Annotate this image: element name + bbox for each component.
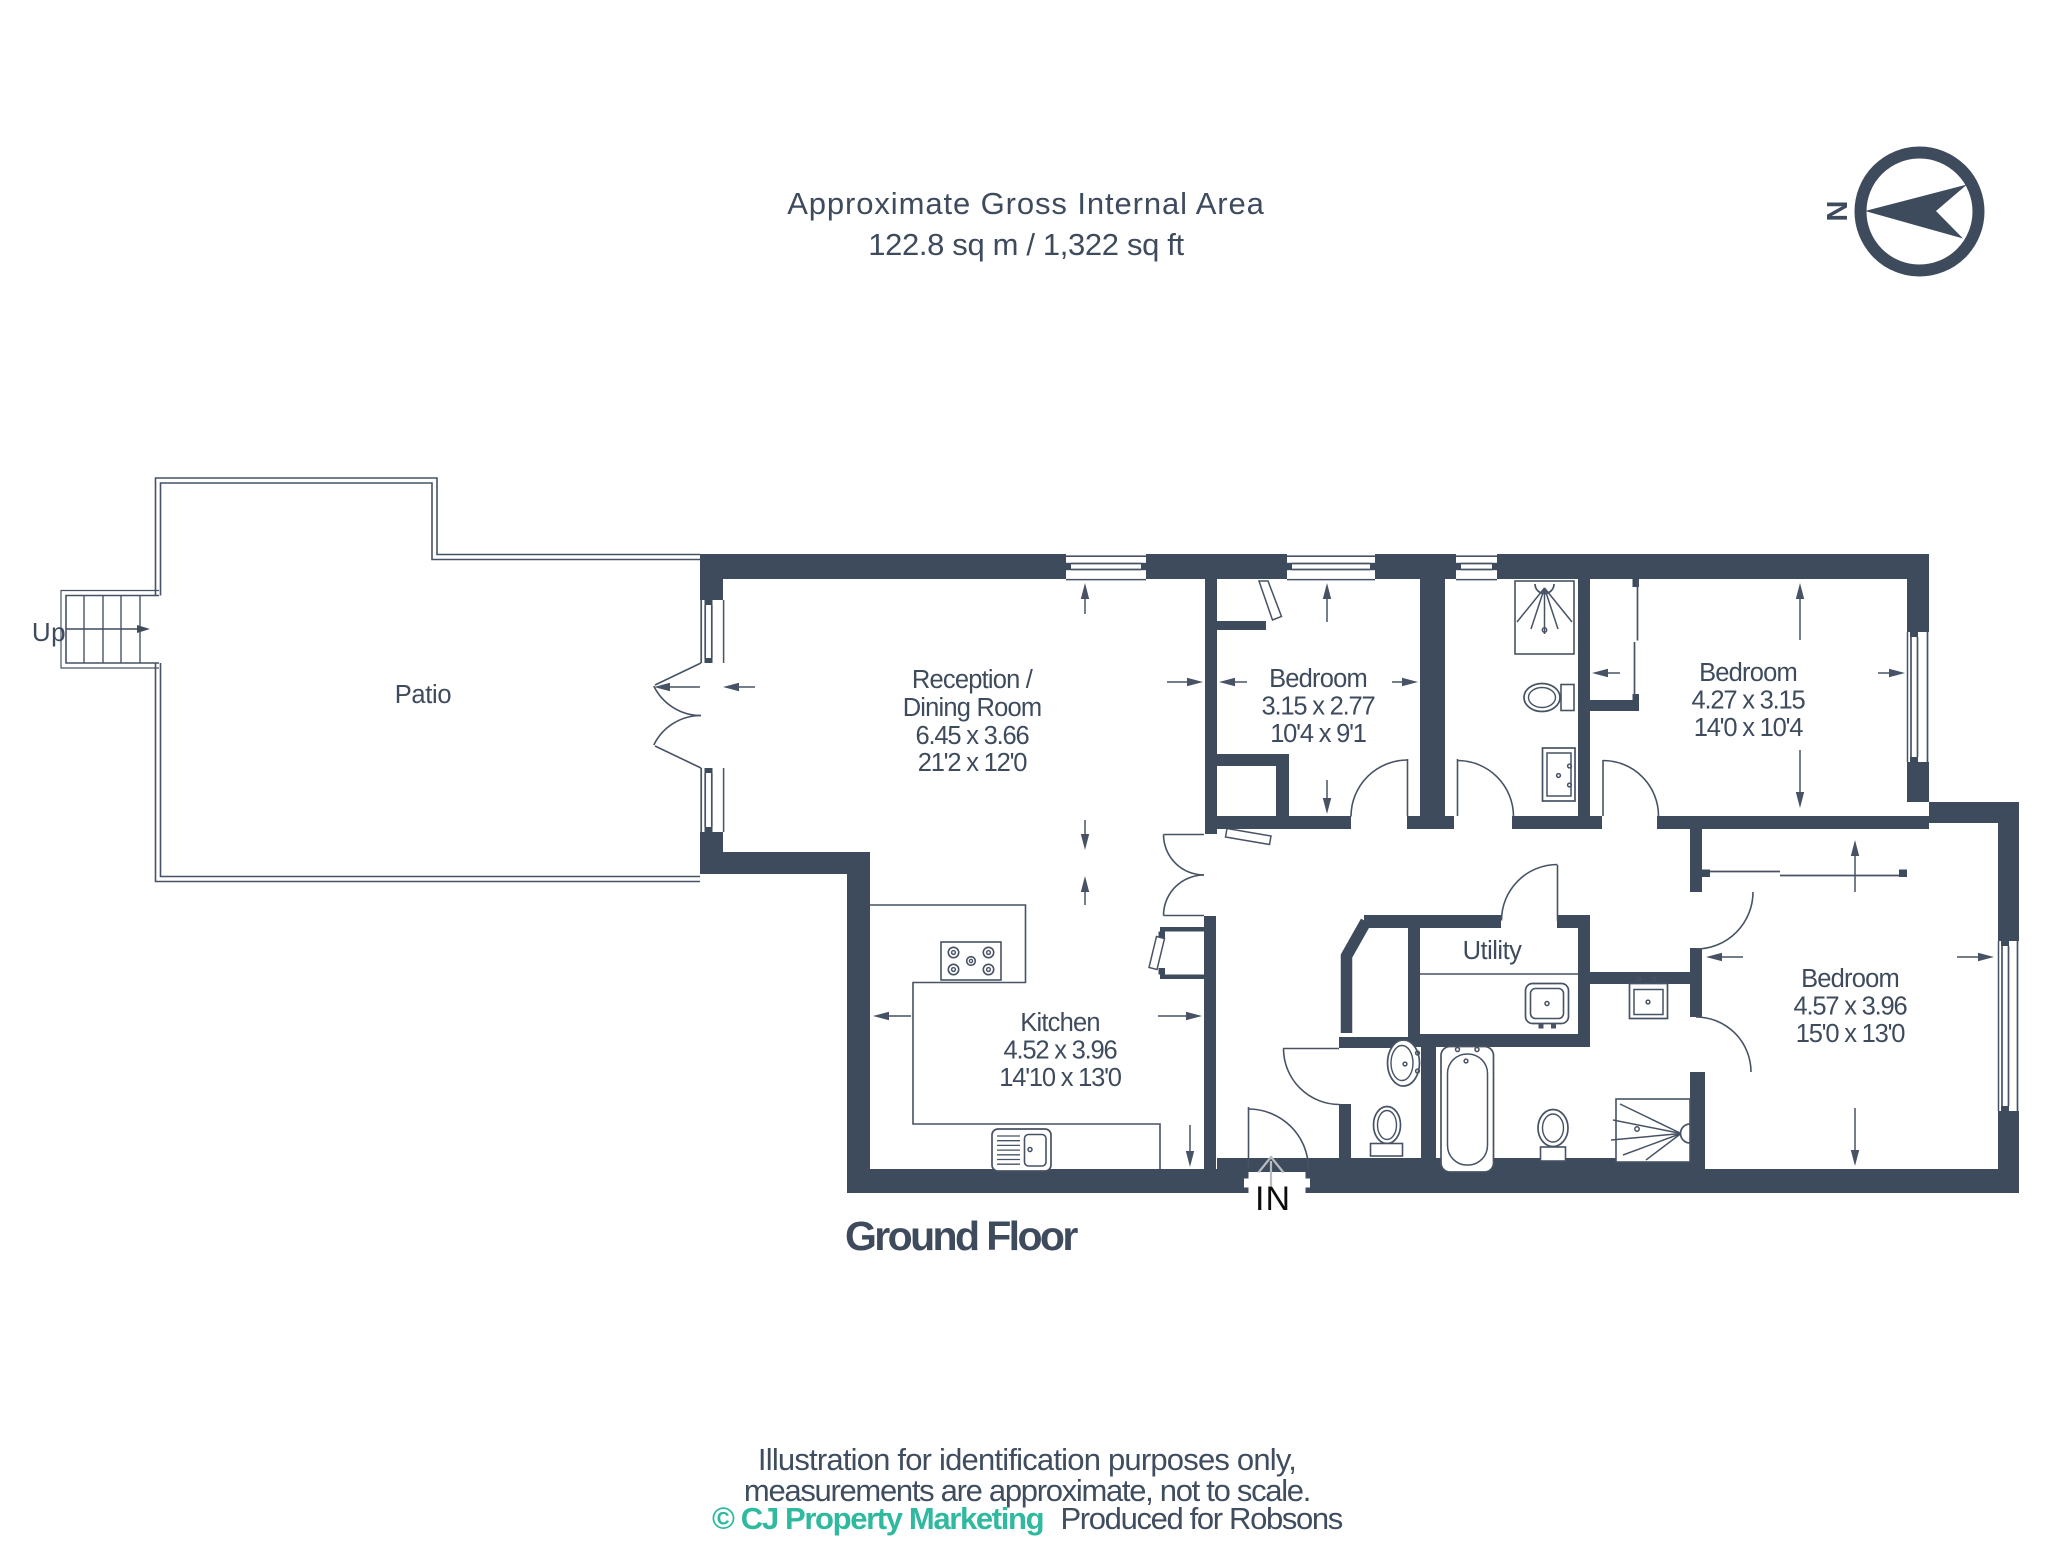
svg-text:14'0 x 10'4: 14'0 x 10'4 [1694, 714, 1804, 742]
svg-text:6.45 x 3.66: 6.45 x 3.66 [916, 722, 1030, 750]
svg-text:N: N [1822, 201, 1854, 222]
svg-text:Patio: Patio [395, 681, 452, 709]
svg-text:Bedroom: Bedroom [1269, 665, 1367, 693]
svg-text:3.15 x 2.77: 3.15 x 2.77 [1262, 693, 1375, 721]
svg-text:Illustration for identificatio: Illustration for identification purposes… [758, 1442, 1296, 1477]
svg-text:14'10 x 13'0: 14'10 x 13'0 [999, 1064, 1122, 1092]
svg-text:4.27 x 3.15: 4.27 x 3.15 [1692, 687, 1806, 715]
svg-text:Reception /: Reception / [912, 666, 1034, 694]
svg-text:4.57 x 3.96: 4.57 x 3.96 [1794, 993, 1908, 1021]
svg-text:Bedroom: Bedroom [1801, 965, 1899, 993]
svg-text:Kitchen: Kitchen [1020, 1009, 1099, 1037]
svg-text:IN: IN [1255, 1180, 1291, 1218]
svg-text:© CJ Property Marketing Produc: © CJ Property Marketing Produced for Rob… [712, 1501, 1343, 1536]
svg-text:Bedroom: Bedroom [1699, 659, 1797, 687]
svg-text:10'4 x 9'1: 10'4 x 9'1 [1270, 720, 1366, 748]
svg-text:Dining Room: Dining Room [903, 694, 1042, 722]
svg-text:4.52 x 3.96: 4.52 x 3.96 [1004, 1037, 1118, 1065]
svg-text:Up: Up [32, 617, 66, 647]
svg-text:Utility: Utility [1463, 937, 1523, 965]
svg-text:Ground Floor: Ground Floor [845, 1213, 1078, 1259]
svg-text:15'0 x 13'0: 15'0 x 13'0 [1796, 1020, 1906, 1048]
svg-text:Approximate Gross Internal Are: Approximate Gross Internal Area [787, 186, 1265, 221]
svg-text:21'2 x 12'0: 21'2 x 12'0 [918, 749, 1028, 777]
svg-text:122.8 sq m / 1,322 sq ft: 122.8 sq m / 1,322 sq ft [868, 227, 1184, 262]
